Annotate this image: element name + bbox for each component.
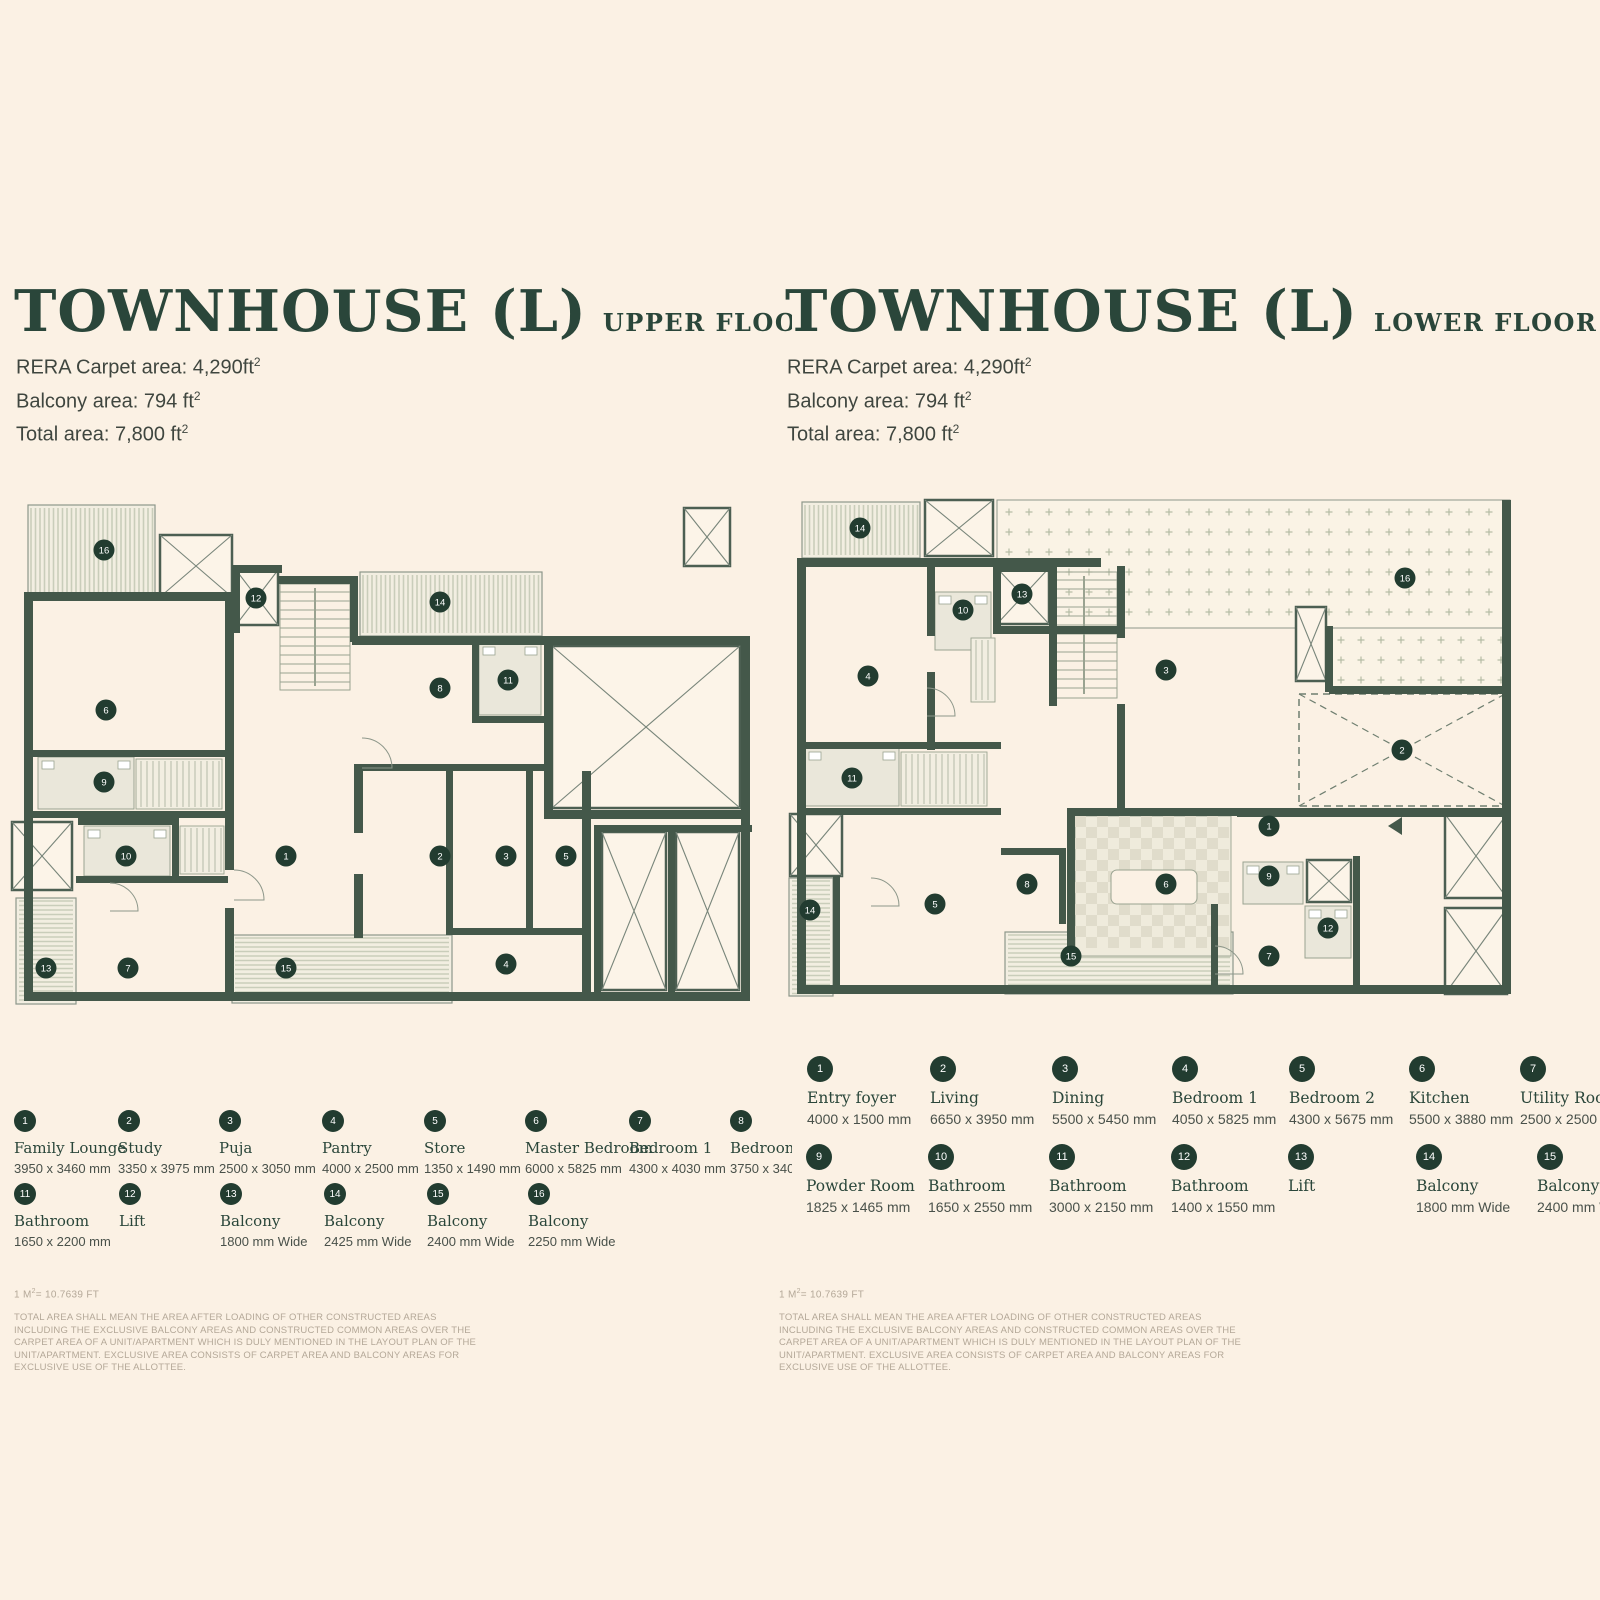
plan-marker-12: 12 (1318, 918, 1339, 939)
legend-room-dimension: 1350 x 1490 mm (424, 1161, 521, 1176)
plan-marker-9: 9 (94, 772, 115, 793)
svg-text:2: 2 (1399, 745, 1404, 756)
legend-room-label: Balcony (427, 1212, 514, 1230)
plan-marker-13: 13 (1012, 584, 1033, 605)
plan-marker-10: 10 (116, 846, 137, 867)
svg-text:5: 5 (563, 851, 568, 862)
legend-item-2: 2Study3350 x 3975 mm (118, 1110, 215, 1176)
legend-room-dimension: 2500 x 3050 mm (219, 1161, 316, 1176)
legend-room-dimension: 6650 x 3950 mm (930, 1111, 1034, 1127)
svg-text:13: 13 (1017, 589, 1028, 600)
upper-floor-label: UPPER FLOOR (603, 308, 792, 337)
plan-marker-4: 4 (496, 954, 517, 975)
upper-balcony-area: Balcony area: 794 ft2 (16, 382, 261, 416)
svg-text:7: 7 (125, 963, 130, 974)
legend-room-label: Kitchen (1409, 1089, 1513, 1107)
legend-item-3: 3Dining5500 x 5450 mm (1052, 1056, 1156, 1127)
legend-item-12: 12Lift (119, 1183, 145, 1230)
legend-room-dimension: 1825 x 1465 mm (806, 1199, 915, 1215)
svg-text:14: 14 (805, 905, 816, 916)
plan-marker-8: 8 (1017, 874, 1038, 895)
legend-item-5: 5Bedroom 24300 x 5675 mm (1289, 1056, 1393, 1127)
legend-room-label: Lift (119, 1212, 145, 1230)
svg-text:15: 15 (281, 963, 292, 974)
upper-area-summary: RERA Carpet area: 4,290ft2 Balcony area:… (16, 348, 261, 449)
legend-item-3: 3Puja2500 x 3050 mm (219, 1110, 316, 1176)
legend-item-12: 12Bathroom1400 x 1550 mm (1171, 1144, 1275, 1215)
svg-text:3: 3 (1163, 665, 1168, 676)
plan-marker-3: 3 (1156, 660, 1177, 681)
legend-number-badge: 13 (220, 1183, 242, 1205)
legend-item-13: 13Balcony1800 mm Wide (220, 1183, 307, 1249)
legend-number-badge: 7 (629, 1110, 651, 1132)
legend-number-badge: 15 (1537, 1144, 1563, 1170)
lower-disclaimer: TOTAL AREA SHALL MEAN THE AREA AFTER LOA… (779, 1312, 1254, 1375)
legend-room-label: Study (118, 1139, 215, 1157)
plan-marker-3: 3 (496, 846, 517, 867)
legend-number-badge: 14 (1416, 1144, 1442, 1170)
svg-text:12: 12 (1323, 923, 1334, 934)
svg-text:9: 9 (101, 777, 106, 788)
upper-title-block: TOWNHOUSE (L)UPPER FLOOR (14, 278, 792, 345)
legend-number-badge: 10 (928, 1144, 954, 1170)
plan-marker-16: 16 (1395, 568, 1416, 589)
legend-room-dimension: 1650 x 2550 mm (928, 1199, 1032, 1215)
legend-room-label: Utility Room (1520, 1089, 1600, 1107)
legend-number-badge: 12 (119, 1183, 141, 1205)
lower-area-summary: RERA Carpet area: 4,290ft2 Balcony area:… (787, 348, 1032, 449)
plan-marker-1: 1 (276, 846, 297, 867)
legend-item-14: 14Balcony1800 mm Wide (1416, 1144, 1510, 1215)
legend-room-label: Balcony (1537, 1177, 1600, 1195)
legend-item-9: 9Powder Room1825 x 1465 mm (806, 1144, 915, 1215)
legend-number-badge: 11 (1049, 1144, 1075, 1170)
plan-marker-10: 10 (953, 600, 974, 621)
legend-item-5: 5Store1350 x 1490 mm (424, 1110, 521, 1176)
legend-item-11: 11Bathroom3000 x 2150 mm (1049, 1144, 1153, 1215)
upper-disclaimer: TOTAL AREA SHALL MEAN THE AREA AFTER LOA… (14, 1312, 489, 1375)
legend-room-dimension: 2250 mm Wide (528, 1234, 615, 1249)
legend-room-label: Balcony (528, 1212, 615, 1230)
panel-lower-floor: TOWNHOUSE (L)LOWER FLOOR RERA Carpet are… (772, 0, 1600, 1600)
svg-text:3: 3 (503, 851, 508, 862)
legend-item-10: 10Bathroom1650 x 2550 mm (928, 1144, 1032, 1215)
plan-marker-6: 6 (96, 700, 117, 721)
svg-text:13: 13 (41, 963, 52, 974)
upper-conversion-note: 1 M2= 10.7639 FT (14, 1288, 99, 1300)
lower-floorplan: 1410131643211198651412157 (775, 480, 1535, 1015)
lower-total-area: Total area: 7,800 ft2 (787, 415, 1032, 449)
svg-text:6: 6 (1163, 879, 1168, 890)
svg-text:11: 11 (503, 675, 513, 686)
legend-item-15: 15Balcony2400 mm W (1537, 1144, 1600, 1215)
legend-item-13: 13Lift (1288, 1144, 1315, 1195)
legend-room-dimension: 3350 x 3975 mm (118, 1161, 215, 1176)
legend-item-7: 7Utility Room2500 x 2500 m (1520, 1056, 1600, 1127)
svg-text:14: 14 (435, 597, 446, 608)
svg-text:6: 6 (103, 705, 108, 716)
legend-room-dimension: 3950 x 3460 mm (14, 1161, 126, 1176)
plan-marker-5: 5 (925, 894, 946, 915)
legend-room-label: Living (930, 1089, 1034, 1107)
plan-marker-6: 6 (1156, 874, 1177, 895)
legend-room-dimension: 1800 mm Wide (220, 1234, 307, 1249)
svg-text:10: 10 (121, 851, 132, 862)
legend-room-dimension: 4000 x 2500 mm (322, 1161, 419, 1176)
plan-marker-2: 2 (430, 846, 451, 867)
legend-number-badge: 2 (930, 1056, 956, 1082)
panel-upper-floor: TOWNHOUSE (L)UPPER FLOOR RERA Carpet are… (0, 0, 792, 1600)
svg-text:11: 11 (847, 773, 857, 784)
lower-title: TOWNHOUSE (L) (785, 278, 1358, 345)
upper-rera-area: RERA Carpet area: 4,290ft2 (16, 348, 261, 382)
legend-number-badge: 8 (730, 1110, 752, 1132)
legend-number-badge: 3 (1052, 1056, 1078, 1082)
legend-item-1: 1Entry foyer4000 x 1500 mm (807, 1056, 911, 1127)
legend-item-6: 6Kitchen5500 x 3880 mm (1409, 1056, 1513, 1127)
legend-number-badge: 3 (219, 1110, 241, 1132)
svg-text:2: 2 (437, 851, 442, 862)
legend-number-badge: 15 (427, 1183, 449, 1205)
svg-text:4: 4 (503, 959, 508, 970)
legend-room-label: Dining (1052, 1089, 1156, 1107)
plan-marker-15: 15 (1061, 946, 1082, 967)
svg-text:7: 7 (1266, 951, 1271, 962)
legend-room-label: Family Lounge (14, 1139, 126, 1157)
legend-number-badge: 7 (1520, 1056, 1546, 1082)
svg-text:8: 8 (437, 683, 442, 694)
legend-room-dimension: 2425 mm Wide (324, 1234, 411, 1249)
svg-text:16: 16 (99, 545, 110, 556)
legend-number-badge: 13 (1288, 1144, 1314, 1170)
upper-total-area: Total area: 7,800 ft2 (16, 415, 261, 449)
legend-number-badge: 1 (807, 1056, 833, 1082)
lower-floorplan-drawing: 1410131643211198651412157 (775, 480, 1535, 1010)
legend-room-label: Bathroom (1049, 1177, 1153, 1195)
legend-room-dimension: 1650 x 2200 mm (14, 1234, 111, 1249)
legend-item-4: 4Bedroom 14050 x 5825 mm (1172, 1056, 1276, 1127)
svg-text:10: 10 (958, 605, 969, 616)
svg-text:5: 5 (932, 899, 937, 910)
legend-number-badge: 4 (1172, 1056, 1198, 1082)
legend-room-dimension: 4300 x 4030 mm (629, 1161, 726, 1176)
plan-marker-4: 4 (858, 666, 879, 687)
legend-room-label: Balcony (220, 1212, 307, 1230)
legend-item-4: 4Pantry4000 x 2500 mm (322, 1110, 419, 1176)
svg-text:16: 16 (1400, 573, 1411, 584)
legend-room-dimension: 4000 x 1500 mm (807, 1111, 911, 1127)
svg-text:1: 1 (1266, 821, 1271, 832)
legend-room-dimension: 2500 x 2500 m (1520, 1111, 1600, 1127)
legend-number-badge: 14 (324, 1183, 346, 1205)
legend-room-dimension: 4300 x 5675 mm (1289, 1111, 1393, 1127)
legend-room-label: Store (424, 1139, 521, 1157)
legend-room-label: Lift (1288, 1177, 1315, 1195)
lower-rera-area: RERA Carpet area: 4,290ft2 (787, 348, 1032, 382)
legend-item-16: 16Balcony2250 mm Wide (528, 1183, 615, 1249)
legend-room-label: Balcony (324, 1212, 411, 1230)
svg-text:12: 12 (251, 593, 262, 604)
svg-text:4: 4 (865, 671, 870, 682)
legend-room-label: Pantry (322, 1139, 419, 1157)
svg-text:1: 1 (283, 851, 288, 862)
svg-text:8: 8 (1024, 879, 1029, 890)
legend-number-badge: 9 (806, 1144, 832, 1170)
legend-item-7: 7Bedroom 14300 x 4030 mm (629, 1110, 726, 1176)
legend-room-label: Bathroom (14, 1212, 111, 1230)
legend-room-label: Powder Room (806, 1177, 915, 1195)
lower-title-block: TOWNHOUSE (L)LOWER FLOOR (785, 278, 1597, 345)
legend-room-label: Puja (219, 1139, 316, 1157)
legend-room-label: Entry foyer (807, 1089, 911, 1107)
lower-floor-label: LOWER FLOOR (1374, 308, 1598, 337)
legend-number-badge: 5 (424, 1110, 446, 1132)
legend-room-dimension: 1400 x 1550 mm (1171, 1199, 1275, 1215)
upper-floorplan: 16121481169101235137154 (10, 480, 760, 1015)
plan-marker-15: 15 (276, 958, 297, 979)
legend-room-dimension: 1800 mm Wide (1416, 1199, 1510, 1215)
legend-item-2: 2Living6650 x 3950 mm (930, 1056, 1034, 1127)
legend-item-15: 15Balcony2400 mm Wide (427, 1183, 514, 1249)
legend-room-label: Bathroom (1171, 1177, 1275, 1195)
svg-text:15: 15 (1066, 951, 1077, 962)
legend-number-badge: 1 (14, 1110, 36, 1132)
plan-marker-13: 13 (36, 958, 57, 979)
plan-marker-14: 14 (800, 900, 821, 921)
plan-marker-16: 16 (94, 540, 115, 561)
legend-room-dimension: 5500 x 5450 mm (1052, 1111, 1156, 1127)
legend-room-label: Balcony (1416, 1177, 1510, 1195)
legend-room-dimension: 4050 x 5825 mm (1172, 1111, 1276, 1127)
legend-room-dimension: 3000 x 2150 mm (1049, 1199, 1153, 1215)
plan-marker-11: 11 (498, 670, 519, 691)
plan-marker-11: 11 (842, 768, 863, 789)
legend-room-label: Bathroom (928, 1177, 1032, 1195)
plan-marker-12: 12 (246, 588, 267, 609)
upper-title: TOWNHOUSE (L) (14, 278, 587, 345)
legend-room-label: Bedroom 1 (629, 1139, 726, 1157)
legend-item-11: 11Bathroom1650 x 2200 mm (14, 1183, 111, 1249)
legend-number-badge: 4 (322, 1110, 344, 1132)
lower-conversion-note: 1 M2= 10.7639 FT (779, 1288, 864, 1300)
lower-balcony-area: Balcony area: 794 ft2 (787, 382, 1032, 416)
legend-number-badge: 2 (118, 1110, 140, 1132)
legend-room-dimension: 2400 mm Wide (427, 1234, 514, 1249)
legend-room-dimension: 2400 mm W (1537, 1199, 1600, 1215)
legend-item-14: 14Balcony2425 mm Wide (324, 1183, 411, 1249)
legend-number-badge: 6 (1409, 1056, 1435, 1082)
legend-number-badge: 5 (1289, 1056, 1315, 1082)
floorplan-brochure-page: { "palette":{ "background":"#FBF1E4","wa… (0, 0, 1600, 1600)
plan-marker-5: 5 (556, 846, 577, 867)
legend-number-badge: 6 (525, 1110, 547, 1132)
plan-marker-14: 14 (430, 592, 451, 613)
legend-room-dimension: 5500 x 3880 mm (1409, 1111, 1513, 1127)
svg-text:14: 14 (855, 523, 866, 534)
legend-number-badge: 12 (1171, 1144, 1197, 1170)
legend-number-badge: 11 (14, 1183, 36, 1205)
legend-number-badge: 16 (528, 1183, 550, 1205)
plan-marker-7: 7 (118, 958, 139, 979)
plan-marker-1: 1 (1259, 816, 1280, 837)
svg-text:9: 9 (1266, 871, 1271, 882)
plan-marker-2: 2 (1392, 740, 1413, 761)
plan-marker-9: 9 (1259, 866, 1280, 887)
plan-marker-7: 7 (1259, 946, 1280, 967)
legend-room-label: Bedroom 2 (1289, 1089, 1393, 1107)
legend-room-label: Bedroom 1 (1172, 1089, 1276, 1107)
legend-item-1: 1Family Lounge3950 x 3460 mm (14, 1110, 126, 1176)
plan-marker-14: 14 (850, 518, 871, 539)
plan-marker-8: 8 (430, 678, 451, 699)
upper-floorplan-drawing: 16121481169101235137154 (10, 480, 760, 1010)
